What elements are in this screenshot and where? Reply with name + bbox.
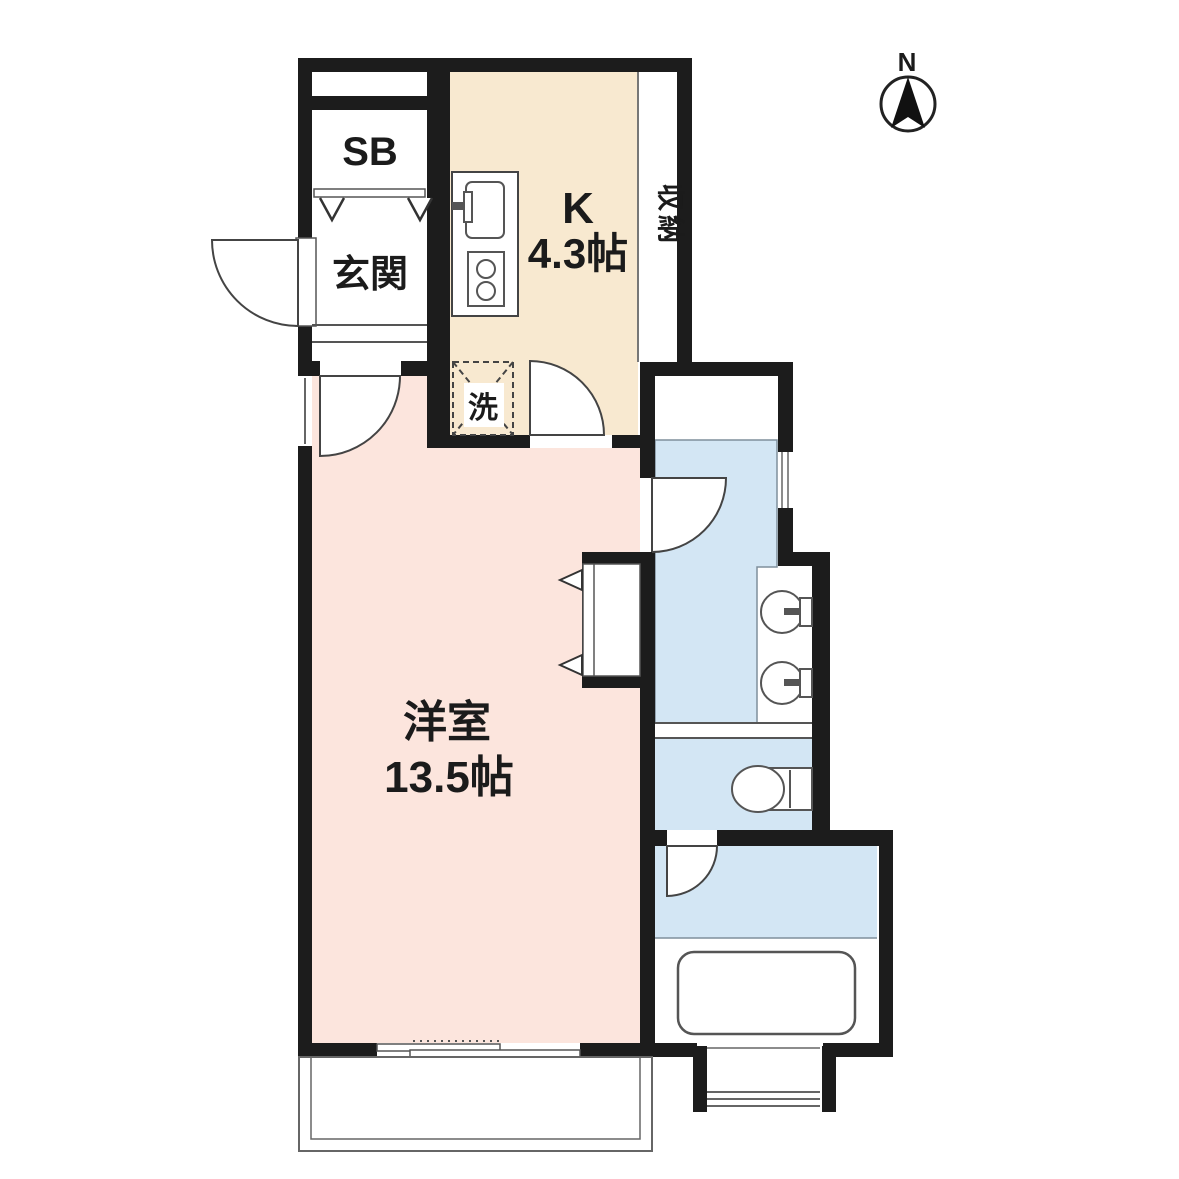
kitchen-label: K (562, 184, 594, 233)
shoe-box-shelf (314, 189, 425, 197)
laundry-label: 洗 (468, 392, 498, 425)
shoe-box-label: SB (342, 130, 398, 174)
wall-under-top-strip (312, 96, 427, 110)
entrance-room-door-gap (320, 361, 401, 376)
entrance-door-swing (212, 240, 298, 326)
wall-porch-right (822, 1046, 836, 1112)
stove-burner-2 (477, 282, 495, 300)
wall-corridor-right-upper (778, 362, 793, 452)
wall-right-mid (812, 552, 830, 846)
wall-entrance-kitchen (427, 58, 450, 448)
storage-label: 収納 (655, 183, 687, 247)
wall-bottom-mid (580, 1043, 697, 1057)
wall-left-upper (298, 58, 312, 238)
stove-burner-1 (477, 260, 495, 278)
wall-entrance-bottom-right (401, 361, 437, 376)
compass: N (881, 47, 935, 131)
compass-north-label: N (898, 47, 917, 77)
wall-corridor-top (640, 362, 793, 376)
wall-left-lower (298, 446, 312, 1057)
sink-handle-1 (800, 598, 812, 626)
balcony-inner-rail (311, 1057, 640, 1139)
western-room-size-label: 13.5帖 (384, 753, 514, 802)
kitchen-faucet-spout (452, 202, 464, 210)
closet-interior (583, 564, 640, 676)
kitchen-door-gap (530, 435, 612, 448)
toilet-slide-door (655, 723, 812, 738)
shelf-mark-left (320, 198, 344, 220)
bathroom-door-gap (667, 830, 717, 846)
north-arrow-icon (891, 77, 925, 128)
wall-wet-left-upper (640, 376, 655, 478)
wall-left-mid (298, 326, 312, 376)
floor-plan-drawing: N SB 玄関 K 4.3帖 収納 洗 洋室 13.5帖 (0, 0, 1179, 1179)
wall-bath-left (640, 846, 655, 1043)
toilet-bowl (732, 766, 784, 812)
wall-bath-top-right (717, 830, 893, 846)
entrance-label: 玄関 (332, 254, 408, 296)
kitchen-faucet (464, 192, 472, 222)
wall-bath-right (879, 830, 893, 1057)
east-window (778, 452, 793, 508)
western-room-label: 洋室 (403, 697, 491, 747)
balcony-outer-rail (299, 1057, 652, 1151)
kitchen-size-label: 4.3帖 (528, 230, 628, 277)
floor-plan-page: N SB 玄関 K 4.3帖 収納 洗 洋室 13.5帖 (0, 0, 1179, 1179)
balcony-window-panel-2 (410, 1050, 580, 1057)
wall-top (298, 58, 692, 72)
wall-kitchen-bottom-left (450, 435, 530, 448)
balcony-porch (299, 1048, 820, 1151)
wall-bath-top-left (640, 830, 667, 846)
bathtub (678, 952, 855, 1034)
wall-bottom-left (298, 1043, 377, 1057)
wall-porch-left (693, 1046, 707, 1112)
wall-entrance-bottom-left (312, 361, 320, 376)
sink-handle-2 (800, 669, 812, 697)
